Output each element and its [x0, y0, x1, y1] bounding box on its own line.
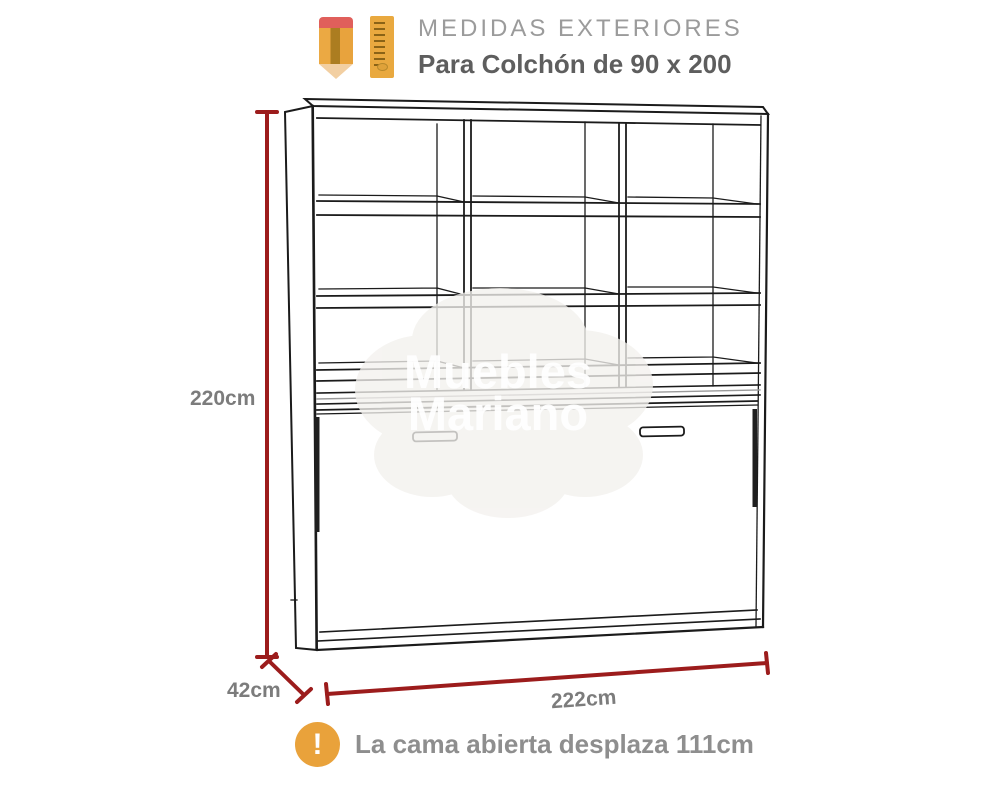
warning-icon: !	[295, 722, 340, 767]
bed-handle-right	[640, 427, 684, 437]
furniture-diagram: Muebles Mariano	[0, 0, 1000, 786]
note-text: La cama abierta desplaza 111cm	[355, 729, 754, 760]
width-dimension-label: 222cm	[550, 686, 617, 715]
depth-dimension-label: 42cm	[227, 679, 281, 703]
bed-left-hinge	[315, 417, 320, 532]
bed-right-hinge	[753, 409, 758, 507]
height-dimension-label: 220cm	[190, 387, 255, 411]
width-dimension-arrow	[326, 653, 768, 704]
note: ! La cama abierta desplaza 111cm	[295, 722, 754, 767]
height-dimension-arrow	[257, 112, 277, 657]
watermark: Muebles Mariano	[355, 288, 653, 518]
watermark-line2: Mariano	[408, 387, 588, 440]
